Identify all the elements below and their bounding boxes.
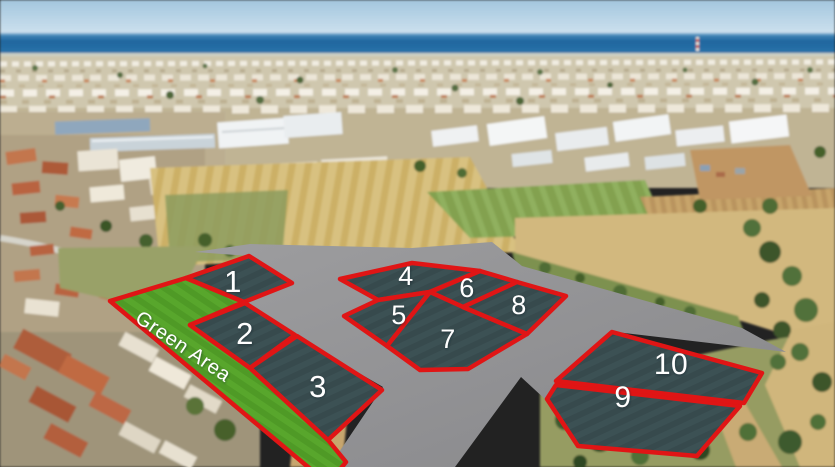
plot-label-10: 10 [654, 348, 688, 381]
plot-label-6: 6 [459, 273, 475, 303]
aerial-scene: 1 2 3 4 5 6 7 8 9 10 Green Area [0, 0, 835, 467]
plot-label-5: 5 [391, 300, 407, 330]
lighthouse [696, 37, 699, 51]
plot-label-9: 9 [614, 381, 631, 414]
plot-label-4: 4 [398, 261, 414, 291]
plot-label-8: 8 [511, 290, 527, 320]
sea-horizon-line [0, 33, 835, 35]
plot-label-1: 1 [224, 264, 242, 299]
aerial-plot-plan: 1 2 3 4 5 6 7 8 9 10 Green Area [0, 0, 835, 467]
plot-label-2: 2 [236, 316, 254, 351]
plot-label-7: 7 [440, 324, 456, 354]
plot-label-3: 3 [309, 369, 327, 404]
